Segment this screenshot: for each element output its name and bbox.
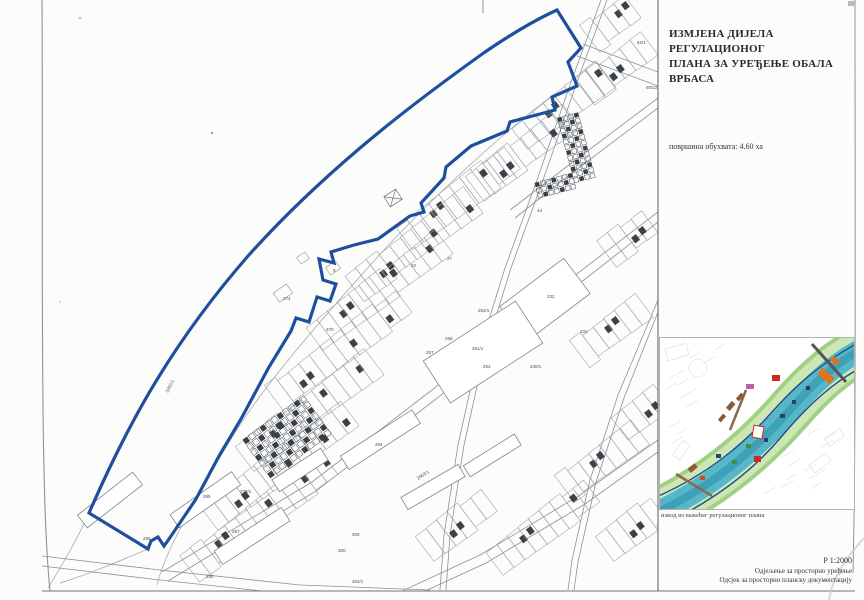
svg-text:274: 274	[283, 296, 291, 301]
inset-map-frame	[659, 337, 855, 510]
svg-text:22: 22	[411, 263, 417, 268]
inset-map	[660, 338, 854, 509]
svg-text:251/1: 251/1	[472, 346, 484, 351]
svg-text:2953/1: 2953/1	[416, 469, 431, 481]
crossed-square	[384, 189, 402, 207]
inner-parcels	[273, 252, 340, 302]
svg-text:290: 290	[206, 574, 214, 579]
scale-block: Р 1:2000 Одјељење за просторно уређење О…	[720, 556, 852, 586]
svg-text:60/22: 60/22	[646, 85, 658, 90]
frame-left	[42, 0, 50, 591]
plan-title-line1: ИЗМЈЕНА ДИЈЕЛА РЕГУЛАЦИОНОГ	[669, 27, 855, 57]
plan-title-line2: ПЛАНА ЗА УРЕЂЕЊЕ ОБАЛА ВРБАСА	[669, 57, 855, 87]
inset-caption: извод из важећег регулационог плана	[661, 512, 764, 519]
svg-text:9: 9	[333, 268, 336, 273]
department-line1: Одјељење за просторно уређење	[720, 567, 852, 576]
svg-text:254/1: 254/1	[478, 308, 490, 313]
svg-text:3202/1: 3202/1	[164, 379, 175, 394]
svg-text:278/1: 278/1	[240, 489, 252, 494]
svg-text:44: 44	[537, 208, 543, 213]
svg-text:232: 232	[547, 294, 555, 299]
large-buildings	[77, 258, 590, 564]
svg-text:294: 294	[375, 442, 383, 447]
plan-title: ИЗМЈЕНА ДИЈЕЛА РЕГУЛАЦИОНОГ ПЛАНА ЗА УРЕ…	[669, 27, 855, 86]
scan-specks	[59, 17, 213, 303]
svg-text:252: 252	[483, 364, 491, 369]
svg-text:300: 300	[338, 548, 346, 553]
svg-text:309: 309	[352, 532, 360, 537]
department-line2: Одсјек за просторно планску документациј…	[720, 576, 852, 585]
river-edge-bottom	[60, 549, 148, 583]
map-scale: Р 1:2000	[720, 556, 852, 567]
svg-text:302/1: 302/1	[352, 579, 364, 584]
svg-text:62: 62	[597, 69, 603, 74]
river-edge-lower	[48, 513, 89, 588]
svg-text:62/1: 62/1	[637, 40, 646, 45]
svg-text:240/1: 240/1	[530, 364, 542, 369]
svg-text:258: 258	[445, 336, 453, 341]
svg-text:233: 233	[580, 329, 588, 334]
svg-text:257: 257	[426, 350, 434, 355]
coverage-area-label: површина обухвата: 4.60 ха	[669, 142, 763, 151]
svg-text:27: 27	[447, 256, 453, 261]
scan-blob	[848, 1, 855, 6]
svg-text:270: 270	[326, 327, 334, 332]
svg-text:295: 295	[203, 494, 211, 499]
plan-sheet: 62/160/22624427229274270232233254/1251/1…	[0, 0, 864, 600]
svg-text:297: 297	[232, 529, 240, 534]
